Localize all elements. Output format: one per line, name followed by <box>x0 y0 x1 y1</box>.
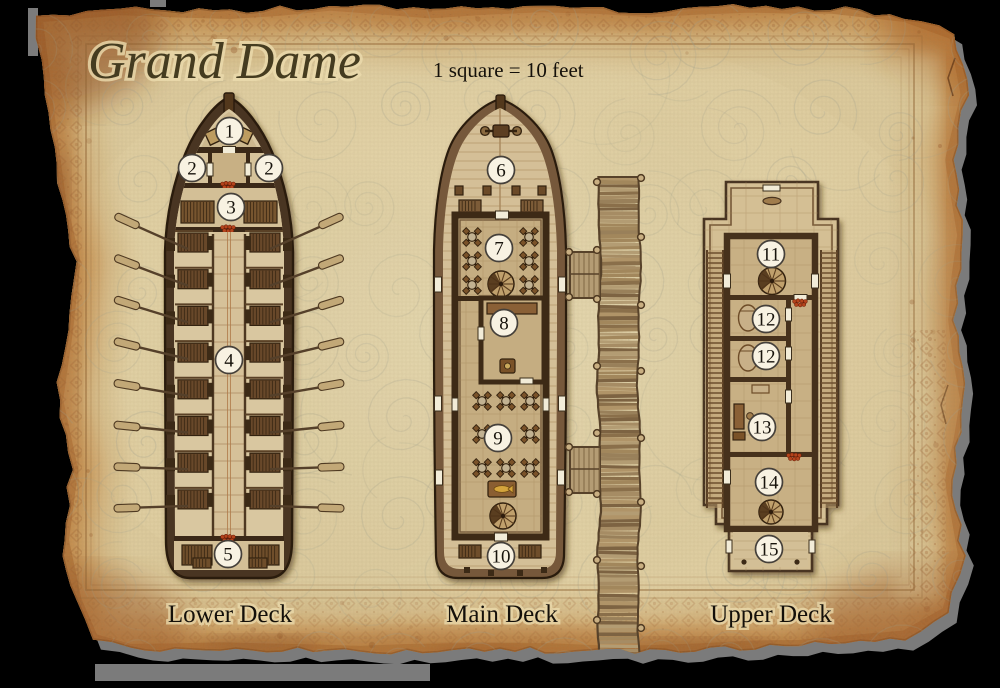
svg-text:14: 14 <box>760 473 780 494</box>
svg-text:12: 12 <box>757 310 776 331</box>
svg-text:1 square = 10 feet: 1 square = 10 feet <box>433 58 584 82</box>
svg-text:Main Deck: Main Deck <box>446 601 558 628</box>
svg-text:8: 8 <box>499 314 509 335</box>
svg-text:1: 1 <box>225 122 235 143</box>
svg-text:2: 2 <box>187 159 197 180</box>
svg-text:11: 11 <box>762 245 780 266</box>
svg-text:4: 4 <box>224 351 234 372</box>
svg-text:5: 5 <box>223 545 233 566</box>
svg-text:2: 2 <box>264 159 274 180</box>
svg-text:Lower Deck: Lower Deck <box>168 601 293 628</box>
svg-text:15: 15 <box>760 540 779 561</box>
svg-text:Upper Deck: Upper Deck <box>710 601 832 628</box>
svg-text:6: 6 <box>496 161 506 182</box>
svg-text:3: 3 <box>226 198 236 219</box>
svg-text:Grand Dame: Grand Dame <box>88 33 361 90</box>
svg-text:10: 10 <box>492 547 511 568</box>
svg-text:12: 12 <box>757 347 776 368</box>
svg-text:9: 9 <box>493 429 503 450</box>
svg-text:13: 13 <box>753 418 772 439</box>
svg-text:7: 7 <box>494 239 504 260</box>
